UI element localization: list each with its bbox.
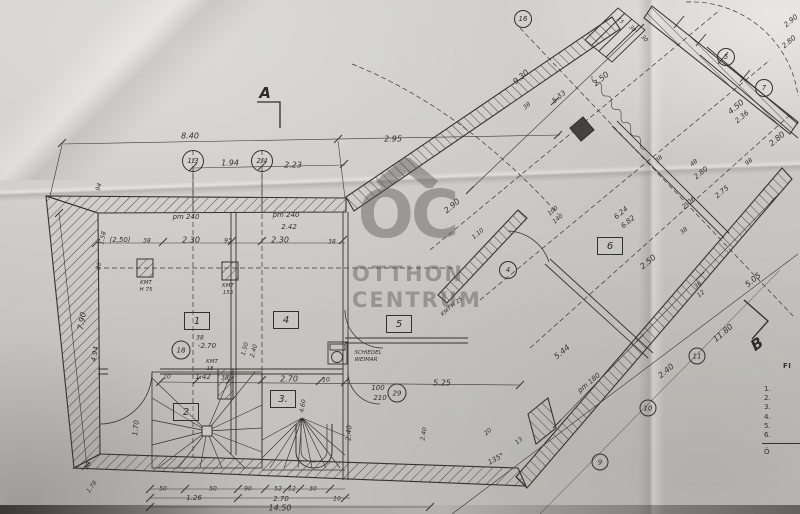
legend-item-3: 3. xyxy=(764,403,771,411)
dim-label: 5.33 xyxy=(550,89,567,105)
dim-label: 1.42 xyxy=(195,373,211,381)
dim-label: 5.25 xyxy=(433,379,451,388)
dim-label: 48 xyxy=(689,158,699,168)
dim-label: 2.40 xyxy=(656,362,675,380)
dim-label: 2.23 xyxy=(284,161,302,170)
dim-label: 30 xyxy=(95,262,103,271)
dim-label: KMT xyxy=(140,280,152,286)
axis-bubble-10: 10 xyxy=(640,400,657,417)
legend-item-4: 4. xyxy=(764,413,771,421)
dim-label: 4.60 xyxy=(298,399,307,413)
room-number-6: 6 xyxy=(597,237,623,255)
dim-label: SCHIEDEL xyxy=(354,350,381,356)
dim-label: 2.40 xyxy=(344,425,353,441)
axis-bubble-29: 29 xyxy=(388,384,407,403)
dim-label: 2.80 xyxy=(692,165,709,181)
legend-footer: Ö xyxy=(764,448,770,456)
dim-label: 38 xyxy=(221,375,229,382)
dim-label: 38 xyxy=(679,226,689,236)
axis-bubble-4: 4 xyxy=(499,261,517,279)
dim-label: 52 xyxy=(274,486,282,493)
dim-label: H 75 xyxy=(140,287,153,293)
axis-bubble-18: 18 xyxy=(172,341,191,360)
dim-label: 20 xyxy=(483,427,493,437)
dim-label: 2.30 xyxy=(271,236,289,245)
dim-label: 210 xyxy=(373,394,386,402)
dim-label: pm 240 xyxy=(273,211,300,219)
room-number-5: 5 xyxy=(386,315,412,333)
dim-label: 98 xyxy=(744,157,754,167)
dim-label: 93 xyxy=(224,238,232,245)
dim-label: 2.80 xyxy=(780,34,797,50)
dim-label: 2.70 xyxy=(280,375,298,384)
dim-label: WEIMAR xyxy=(355,357,378,363)
dim-label: 1.78 xyxy=(85,480,98,495)
dim-label: 4.94 xyxy=(90,346,101,363)
dim-label: 7.90 xyxy=(76,311,88,330)
dim-label: 15 xyxy=(615,16,624,25)
dim-label: 1.26 xyxy=(186,494,202,502)
dim-label: 38 xyxy=(143,238,151,245)
room-number-2: 2 xyxy=(173,403,199,421)
legend-item-6: 6. xyxy=(764,431,771,439)
dim-label: 2.95 xyxy=(384,135,402,144)
dim-label: 2.50 xyxy=(591,70,610,88)
dim-label: 2.50 xyxy=(638,253,657,271)
dim-label: 1.94 xyxy=(221,159,239,168)
dim-label: 2.40 xyxy=(249,344,259,359)
dim-label: 38 xyxy=(522,101,532,111)
dim-label: 90 xyxy=(244,486,252,493)
dim-label: 5.05 xyxy=(743,271,762,289)
dim-label: 100 xyxy=(371,384,384,392)
room-number-4: 4 xyxy=(273,311,299,329)
dim-label: 38 xyxy=(654,154,664,164)
dim-label: KMT xyxy=(222,283,234,289)
dim-label: 135° xyxy=(487,452,506,467)
photographed-floor-plan: { "title": "Ground floor plan (hand-draw… xyxy=(0,0,800,514)
room-number-1: 1 xyxy=(184,312,210,330)
legend-item-1: 1. xyxy=(764,385,771,393)
dim-label: 2.80 xyxy=(767,130,786,148)
dim-label: 2.40 xyxy=(419,427,428,441)
dim-label: 2.70 xyxy=(273,495,289,503)
dim-label: 30 xyxy=(627,24,636,33)
dim-label: 12 xyxy=(288,486,296,493)
dim-label: 38 xyxy=(83,461,93,471)
dim-label: 2.42 xyxy=(281,223,297,231)
axis-bubble-5: 5 xyxy=(717,48,735,66)
dim-label: 50 xyxy=(159,486,167,493)
dim-label: 12 xyxy=(696,289,706,299)
dim-label: 10 xyxy=(163,374,171,381)
dim-label: 8.40 xyxy=(181,132,199,141)
legend-heading: FI xyxy=(783,362,791,370)
dim-label: 1.10 xyxy=(471,227,486,241)
dim-label: pm 180 xyxy=(576,371,602,394)
dim-label: KMT H 25 xyxy=(440,296,464,318)
dim-label: 18 xyxy=(207,366,214,372)
plan-annotations: 8.402.951.942.23pm 240pm 2402.42(2,50)38… xyxy=(0,0,800,514)
dim-label: (2,50) xyxy=(109,236,130,244)
dim-label: pm 240 xyxy=(173,213,200,221)
dim-label: 38 xyxy=(328,239,336,246)
dim-label: 2.30 xyxy=(182,236,200,245)
dim-label: 2.06 xyxy=(680,195,697,211)
dim-label: 1.58 xyxy=(98,231,108,246)
section-marker-B: B xyxy=(747,333,767,354)
axis-bubble-16: 16 xyxy=(514,10,532,28)
dim-label: 5.44 xyxy=(552,343,571,361)
axis-bubble-2-4: 2/4 xyxy=(251,150,273,172)
dim-label: 13 xyxy=(514,436,524,446)
dim-label: 30 xyxy=(639,34,648,43)
dim-label: 2.90 xyxy=(442,197,461,215)
dim-label: 10 xyxy=(333,496,341,503)
dim-label: 10 xyxy=(322,377,330,384)
dim-label: 9.30 xyxy=(511,68,530,86)
dim-label: 14.50 xyxy=(269,504,292,513)
axis-bubble-1-3: 1/3 xyxy=(182,150,204,172)
dim-label: 94 xyxy=(94,182,103,192)
dim-label: 1.70 xyxy=(131,420,141,436)
dim-label: 50 xyxy=(209,486,217,493)
dim-label: -2.70 xyxy=(198,342,216,350)
dim-label: 11.80 xyxy=(711,322,734,344)
room-number-3: 3. xyxy=(270,390,296,408)
axis-bubble-9: 9 xyxy=(592,454,609,471)
legend-item-5: 5. xyxy=(764,422,771,430)
section-marker-A: A xyxy=(259,84,271,102)
legend-rule xyxy=(762,443,800,444)
dim-label: 2.75 xyxy=(713,184,730,200)
dim-label: 155 xyxy=(223,290,234,296)
dim-label: 2.90 xyxy=(782,13,799,29)
dim-label: KMT xyxy=(206,359,218,365)
dim-label: 38 xyxy=(196,335,204,342)
legend-item-2: 2. xyxy=(764,394,771,402)
dim-label: 30 xyxy=(309,486,317,493)
axis-bubble-7: 7 xyxy=(755,79,773,97)
axis-bubble-11: 11 xyxy=(689,348,706,365)
